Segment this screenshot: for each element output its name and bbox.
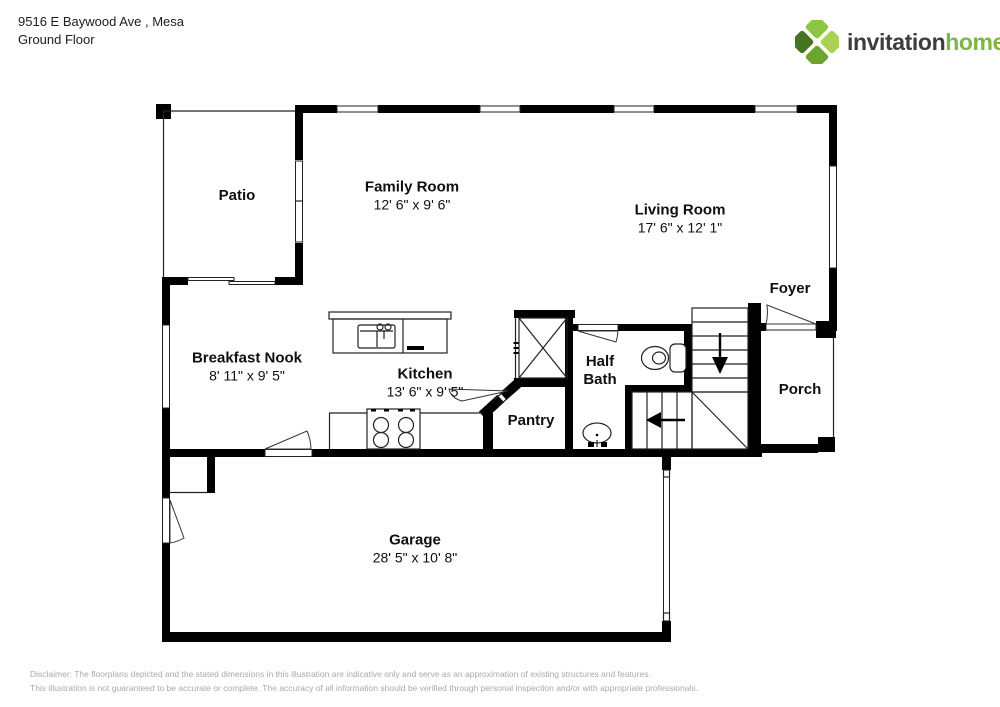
toilet-bowl	[642, 347, 669, 370]
room-dims: 13' 6" x 9' 5"	[387, 384, 464, 401]
room-label-pantry: Pantry	[508, 412, 555, 430]
front-door-threshold	[766, 324, 816, 330]
room-label-kitchen: Kitchen 13' 6" x 9' 5"	[387, 366, 464, 401]
room-name: Patio	[219, 187, 256, 205]
closet-box	[514, 318, 568, 378]
garage-entry-door-leaf	[265, 431, 311, 449]
window-top-2	[480, 106, 520, 112]
garage-entry-threshold	[265, 450, 312, 457]
disclaimer: Disclaimer: The floorplans depicted and …	[30, 667, 698, 695]
dishwasher-handle	[407, 346, 424, 350]
patio-slider-panel-2	[229, 282, 275, 285]
room-label-half-bath: Half Bath	[574, 353, 626, 389]
patio-slider-panel-1	[188, 278, 234, 281]
room-name: Family Room	[365, 179, 459, 197]
window-living-room	[830, 166, 837, 268]
room-name: Pantry	[508, 412, 555, 430]
garage-side-door-threshold	[163, 498, 170, 543]
room-name: Living Room	[635, 202, 726, 220]
disclaimer-line-1: Disclaimer: The floorplans depicted and …	[30, 667, 698, 681]
garage-overhead-door	[664, 470, 670, 621]
half-bath-door-threshold	[578, 325, 618, 331]
front-door-leaf	[766, 305, 816, 324]
floorplan-page: 9516 E Baywood Ave , Mesa Ground Floor i…	[0, 0, 1000, 707]
window-breakfast-nook	[163, 325, 170, 408]
half-bath-door-leaf	[578, 331, 618, 342]
room-name: Garage	[373, 532, 458, 550]
room-label-breakfast-nook: Breakfast Nook 8' 11" x 9' 5"	[192, 350, 302, 385]
window-top-3	[614, 106, 654, 112]
room-label-family-room: Family Room 12' 6" x 9' 6"	[365, 179, 459, 214]
room-label-patio: Patio	[219, 187, 256, 205]
floor-plan-drawing	[0, 0, 1000, 707]
room-dims: 12' 6" x 9' 6"	[365, 197, 459, 214]
disclaimer-line-2: This illustration is not guaranteed to b…	[30, 681, 698, 695]
room-dims: 8' 11" x 9' 5"	[192, 368, 302, 385]
room-label-garage: Garage 28' 5" x 10' 8"	[373, 532, 458, 567]
room-label-foyer: Foyer	[770, 280, 811, 298]
room-name: Kitchen	[387, 366, 464, 384]
room-name: Foyer	[770, 280, 811, 298]
toilet-tank	[670, 344, 686, 372]
foyer-porch-structure	[748, 303, 836, 457]
kitchen-island	[329, 312, 451, 353]
room-dims: 17' 6" x 12' 1"	[635, 220, 726, 237]
room-name: Half Bath	[574, 353, 626, 389]
room-label-porch: Porch	[779, 381, 822, 399]
window-top-4	[755, 106, 797, 112]
window-top-1	[337, 106, 378, 112]
stairs-left-arrow-icon	[646, 412, 661, 428]
room-name: Porch	[779, 381, 822, 399]
room-name: Breakfast Nook	[192, 350, 302, 368]
kitchen-counter	[329, 409, 483, 449]
garage-side-door-leaf	[170, 500, 184, 543]
room-label-living-room: Living Room 17' 6" x 12' 1"	[635, 202, 726, 237]
stairs-down-arrow-icon	[712, 357, 728, 374]
room-dims: 28' 5" x 10' 8"	[373, 550, 458, 567]
garage-entry-door	[265, 431, 312, 457]
